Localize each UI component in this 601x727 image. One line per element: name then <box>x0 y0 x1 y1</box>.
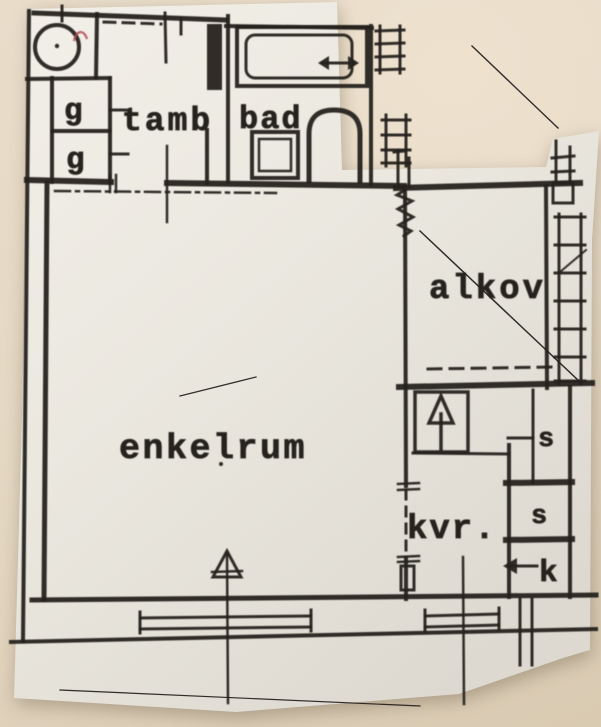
photo-scene: tamb bad alkov enkelrum kvr. g g s s k <box>0 0 601 727</box>
alkov-left-wall <box>405 188 406 486</box>
section-line-2 <box>463 557 464 704</box>
cabinet-label-lower: s <box>531 502 547 532</box>
counter-line <box>413 453 509 454</box>
hall-bottom-wall-right <box>167 183 404 186</box>
entrance-swing-dashes <box>104 22 161 24</box>
entrance-door-icon <box>207 24 222 90</box>
shaft-ladder-icon <box>376 26 404 73</box>
paper-sheet <box>14 2 599 712</box>
boiler-center-dot <box>55 44 59 48</box>
left-inner-wall <box>44 183 47 599</box>
cabinet-divider-lower <box>506 539 572 540</box>
fridge-label: k <box>539 556 558 591</box>
cabinet-divider-upper <box>506 482 572 483</box>
north-arrow-base <box>212 571 242 572</box>
boiler-nook-wall-h <box>27 78 110 79</box>
room-label-kvr: kvr. <box>407 511 497 549</box>
kitchenette-top-wall <box>399 383 592 387</box>
alkov-right-wall <box>546 186 547 388</box>
room-label-bad: bad <box>239 101 303 138</box>
shaft-ladder-icon <box>382 115 410 166</box>
room-label-tamb: tamb <box>122 103 213 140</box>
wardrobe-label-lower: g <box>66 143 85 178</box>
entrance-door-frame <box>165 13 166 62</box>
wardrobe-label-upper: g <box>64 94 83 129</box>
cabinet-label-upper: s <box>538 425 554 455</box>
boiler-nook-wall-v <box>96 14 97 78</box>
room-label-enkelrum: enkelrum <box>119 429 307 469</box>
floor-plan-photo: tamb bad alkov enkelrum kvr. g g s s k <box>0 0 601 727</box>
hall-bottom-wall-left <box>27 180 111 182</box>
stray-ink-dot <box>219 462 223 466</box>
room-label-alkov: alkov <box>429 271 546 309</box>
